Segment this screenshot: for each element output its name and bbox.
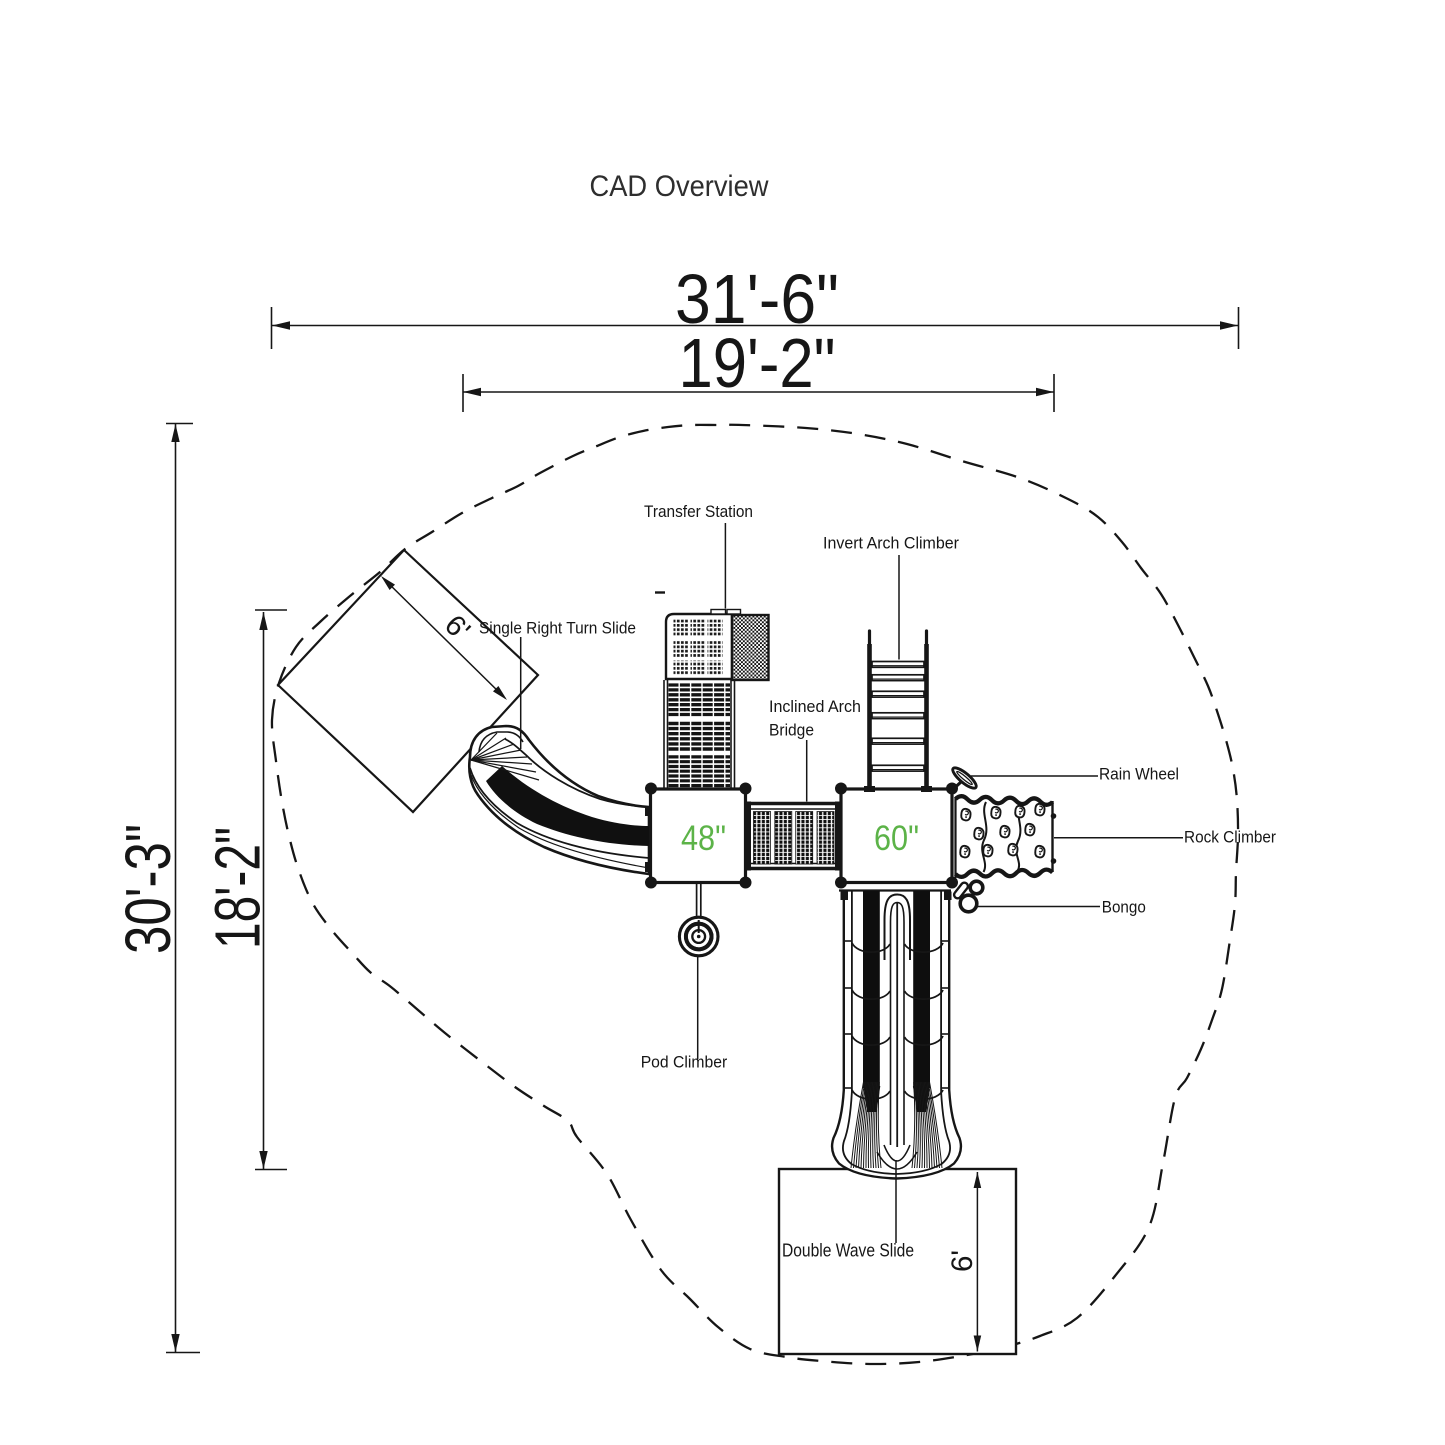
svg-text:Invert Arch Climber: Invert Arch Climber <box>823 535 959 553</box>
svg-text:Inclined Arch: Inclined Arch <box>769 698 861 716</box>
svg-text:CAD Overview: CAD Overview <box>590 170 769 203</box>
svg-text:6': 6' <box>946 1250 979 1272</box>
svg-text:Double Wave Slide: Double Wave Slide <box>782 1240 914 1261</box>
svg-text:19'-2": 19'-2" <box>679 324 836 402</box>
svg-text:48": 48" <box>681 819 726 858</box>
svg-text:Pod Climber: Pod Climber <box>641 1054 728 1072</box>
svg-text:Bongo: Bongo <box>1102 899 1146 917</box>
svg-text:30'-3": 30'-3" <box>112 824 184 954</box>
svg-text:Bridge: Bridge <box>769 722 814 740</box>
svg-text:Transfer Station: Transfer Station <box>644 503 753 521</box>
svg-text:Rain Wheel: Rain Wheel <box>1099 766 1179 784</box>
svg-text:Single Right Turn Slide: Single Right Turn Slide <box>479 620 636 638</box>
svg-text:60": 60" <box>874 819 919 858</box>
svg-text:Rock Climber: Rock Climber <box>1184 829 1276 847</box>
